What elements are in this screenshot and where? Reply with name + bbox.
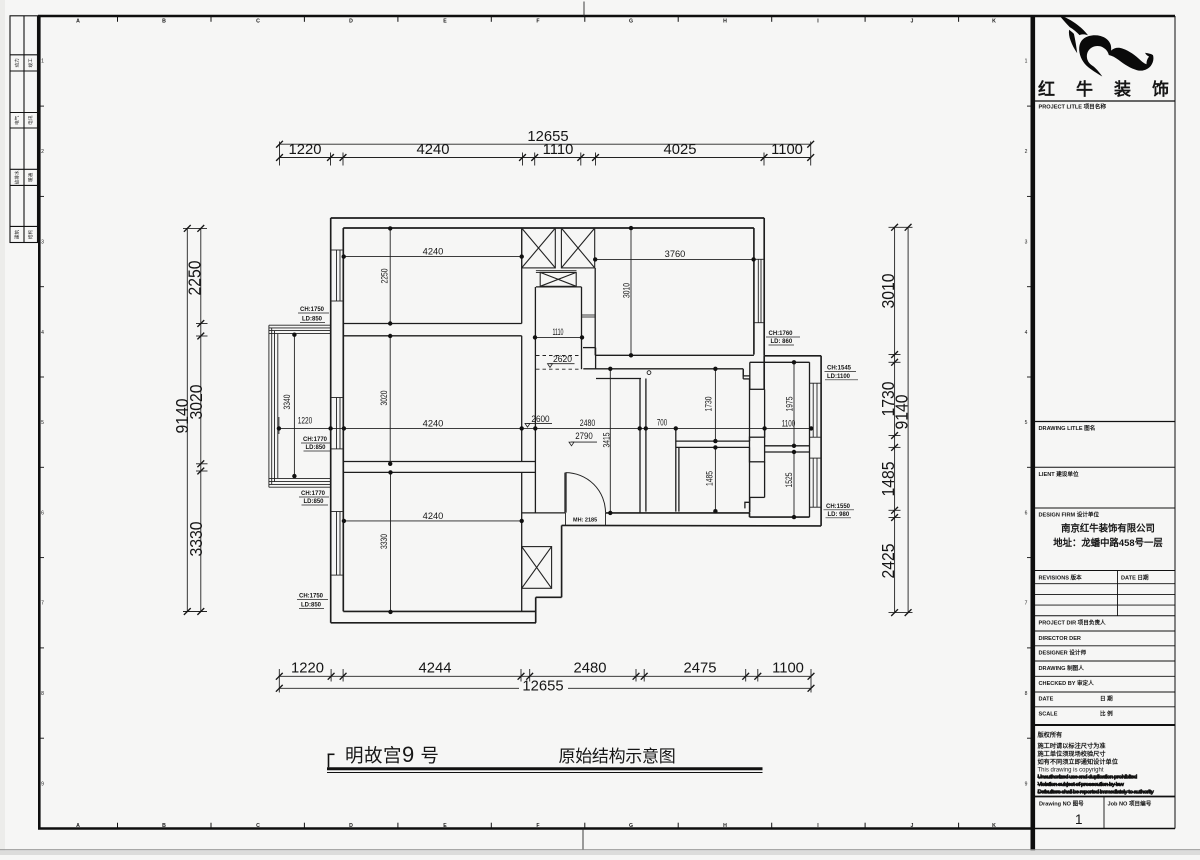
svg-text:A: A <box>76 823 80 829</box>
svg-text:CH:1760: CH:1760 <box>769 331 794 337</box>
svg-text:4240: 4240 <box>423 418 444 428</box>
svg-text:A: A <box>76 19 80 25</box>
svg-text:3: 3 <box>1025 240 1028 246</box>
svg-text:3760: 3760 <box>665 249 686 259</box>
svg-text:CH:1770: CH:1770 <box>301 491 326 497</box>
svg-text:12655: 12655 <box>522 679 563 695</box>
svg-text:B: B <box>162 823 166 829</box>
svg-text:2620: 2620 <box>553 354 572 364</box>
svg-text:REVISIONS 版本: REVISIONS 版本 <box>1039 574 1083 582</box>
svg-text:LD: 980: LD: 980 <box>828 512 850 518</box>
svg-text:3340: 3340 <box>282 395 292 410</box>
svg-text:4: 4 <box>1025 330 1028 336</box>
svg-text:K: K <box>992 19 996 25</box>
svg-text:1: 1 <box>1025 59 1028 65</box>
svg-text:3010: 3010 <box>622 283 632 298</box>
svg-text:E: E <box>443 823 447 829</box>
svg-text:DESIGN FIRM 设计单位: DESIGN FIRM 设计单位 <box>1039 511 1100 519</box>
svg-text:地址：龙蟠中路458号一层: 地址：龙蟠中路458号一层 <box>1053 537 1163 548</box>
svg-text:6: 6 <box>1025 510 1028 516</box>
svg-text:PROJECT DIR 项目负责人: PROJECT DIR 项目负责人 <box>1039 619 1107 627</box>
svg-text:2: 2 <box>41 149 44 155</box>
svg-text:1100: 1100 <box>771 142 803 158</box>
svg-text:南京红牛装饰有限公司: 南京红牛装饰有限公司 <box>1061 523 1155 534</box>
svg-text:DRAWING 制图人: DRAWING 制图人 <box>1039 664 1085 672</box>
svg-text:H: H <box>723 823 727 829</box>
svg-text:DATE: DATE <box>1039 697 1054 703</box>
svg-text:2475: 2475 <box>684 661 717 677</box>
svg-text:1220: 1220 <box>298 415 312 425</box>
svg-text:1: 1 <box>1075 812 1083 827</box>
svg-text:CH:1545: CH:1545 <box>827 366 852 372</box>
svg-text:CH:1750: CH:1750 <box>300 307 325 313</box>
svg-text:建筑: 建筑 <box>14 230 21 240</box>
svg-text:This drawing is copyright: This drawing is copyright <box>1038 768 1104 774</box>
svg-text:2250: 2250 <box>380 269 390 284</box>
svg-text:G: G <box>629 823 633 829</box>
svg-text:K: K <box>992 823 996 829</box>
svg-text:3010: 3010 <box>878 273 898 308</box>
svg-text:700: 700 <box>657 418 667 428</box>
svg-text:1100: 1100 <box>772 661 804 677</box>
svg-text:2480: 2480 <box>580 418 596 428</box>
svg-text:4240: 4240 <box>423 247 444 257</box>
svg-text:LIENT 建设单位: LIENT 建设单位 <box>1039 470 1079 478</box>
svg-text:1730: 1730 <box>704 397 714 412</box>
svg-text:C: C <box>256 823 260 829</box>
svg-text:原始结构示意图: 原始结构示意图 <box>559 747 676 766</box>
svg-text:4244: 4244 <box>419 661 452 677</box>
svg-text:1100: 1100 <box>782 419 796 429</box>
svg-text:H: H <box>723 19 727 25</box>
svg-text:5: 5 <box>41 420 44 426</box>
svg-text:2: 2 <box>1025 149 1028 155</box>
svg-text:2425: 2425 <box>878 544 898 579</box>
svg-text:4240: 4240 <box>423 511 444 521</box>
svg-text:1110: 1110 <box>543 142 574 158</box>
svg-text:B: B <box>162 19 166 25</box>
svg-text:3: 3 <box>41 240 44 246</box>
svg-text:Job NO 项目编号: Job NO 项目编号 <box>1108 800 1152 808</box>
svg-text:Violation subject of prosecuti: Violation subject of prosecution by law <box>1038 782 1125 788</box>
svg-text:暖通: 暖通 <box>27 172 34 182</box>
svg-text:E: E <box>443 19 447 25</box>
svg-text:1110: 1110 <box>553 327 564 337</box>
svg-text:2600: 2600 <box>531 414 549 424</box>
svg-text:D: D <box>349 19 353 25</box>
svg-text:动力: 动力 <box>14 58 21 68</box>
svg-text:1220: 1220 <box>289 142 322 158</box>
svg-text:1525: 1525 <box>784 473 794 488</box>
svg-text:CH:1750: CH:1750 <box>299 594 324 600</box>
svg-text:C: C <box>256 19 260 25</box>
svg-text:9: 9 <box>41 781 44 787</box>
svg-text:电气: 电气 <box>14 115 20 125</box>
svg-text:G: G <box>629 19 633 25</box>
svg-text:CH:1550: CH:1550 <box>826 504 851 510</box>
svg-text:LD: 860: LD: 860 <box>771 339 793 345</box>
svg-text:1: 1 <box>41 59 44 65</box>
svg-text:比 例: 比 例 <box>1100 709 1113 717</box>
svg-text:7: 7 <box>41 601 44 607</box>
svg-text:3415: 3415 <box>602 433 612 448</box>
svg-text:PROJECT LITLE 项目名称: PROJECT LITLE 项目名称 <box>1039 103 1107 111</box>
svg-text:3330: 3330 <box>379 534 389 549</box>
svg-text:1220: 1220 <box>291 661 324 677</box>
svg-text:6: 6 <box>41 510 44 516</box>
svg-text:J: J <box>911 19 914 25</box>
svg-text:DIRECTOR DER: DIRECTOR DER <box>1039 636 1081 642</box>
svg-text:LD:850: LD:850 <box>304 499 325 505</box>
svg-text:Unauthorized use and duplicati: Unauthorized use and duplication prohibi… <box>1038 775 1138 781</box>
svg-text:D: D <box>349 823 353 829</box>
svg-text:2480: 2480 <box>574 661 607 677</box>
svg-text:电讯: 电讯 <box>27 115 34 125</box>
svg-text:3330: 3330 <box>186 521 206 556</box>
svg-text:LD:850: LD:850 <box>306 445 327 451</box>
svg-text:4: 4 <box>41 330 44 336</box>
svg-text:3020: 3020 <box>379 391 389 406</box>
svg-text:8: 8 <box>1025 691 1028 697</box>
svg-text:竣工: 竣工 <box>27 58 34 68</box>
svg-text:1975: 1975 <box>785 397 795 412</box>
svg-text:MH: 2185: MH: 2185 <box>573 518 597 524</box>
svg-text:F: F <box>536 823 539 829</box>
svg-text:CH:1770: CH:1770 <box>303 437 328 443</box>
svg-text:9140: 9140 <box>892 394 912 429</box>
svg-text:DRAWING LITLE 图名: DRAWING LITLE 图名 <box>1039 424 1096 432</box>
svg-text:结构: 结构 <box>27 230 34 240</box>
svg-text:红牛装饰: 红牛装饰 <box>1038 79 1190 99</box>
svg-text:F: F <box>536 19 539 25</box>
svg-text:7: 7 <box>1025 601 1028 607</box>
svg-text:9: 9 <box>1025 781 1028 787</box>
svg-text:LD:1100: LD:1100 <box>827 374 851 380</box>
svg-text:CHECKED BY 审定人: CHECKED BY 审定人 <box>1039 679 1095 687</box>
svg-text:1485: 1485 <box>705 471 715 486</box>
svg-text:9140: 9140 <box>172 398 192 433</box>
svg-text:8: 8 <box>41 691 44 697</box>
svg-text:Drawing NO 图号: Drawing NO 图号 <box>1039 800 1084 808</box>
svg-text:日 期: 日 期 <box>1100 695 1113 703</box>
svg-text:2790: 2790 <box>575 431 593 441</box>
svg-text:2250: 2250 <box>185 260 205 295</box>
svg-text:施工时请以标注尺寸为准: 施工时请以标注尺寸为准 <box>1038 742 1107 750</box>
svg-text:LD:850: LD:850 <box>301 603 322 609</box>
svg-text:5: 5 <box>1025 420 1028 426</box>
svg-text:1485: 1485 <box>878 462 898 497</box>
svg-text:DATE 日期: DATE 日期 <box>1121 574 1149 582</box>
svg-text:J: J <box>911 823 914 829</box>
svg-text:4025: 4025 <box>664 142 697 158</box>
svg-text:给排水: 给排水 <box>14 170 21 184</box>
svg-text:版权所有: 版权所有 <box>1037 731 1063 739</box>
svg-text:LD:850: LD:850 <box>302 317 323 323</box>
svg-text:明故宫9 号: 明故宫9 号 <box>345 742 439 767</box>
svg-text:DESIGNER 设计师: DESIGNER 设计师 <box>1039 649 1087 657</box>
svg-text:如有不同须立即通知设计单位: 如有不同须立即通知设计单位 <box>1038 758 1119 766</box>
svg-text:4240: 4240 <box>417 142 450 158</box>
svg-text:Defaulters shall be reported i: Defaulters shall be reported immediately… <box>1038 790 1155 796</box>
svg-text:SCALE: SCALE <box>1039 711 1058 717</box>
svg-text:施工单位须现场校验尺寸: 施工单位须现场校验尺寸 <box>1038 750 1107 758</box>
